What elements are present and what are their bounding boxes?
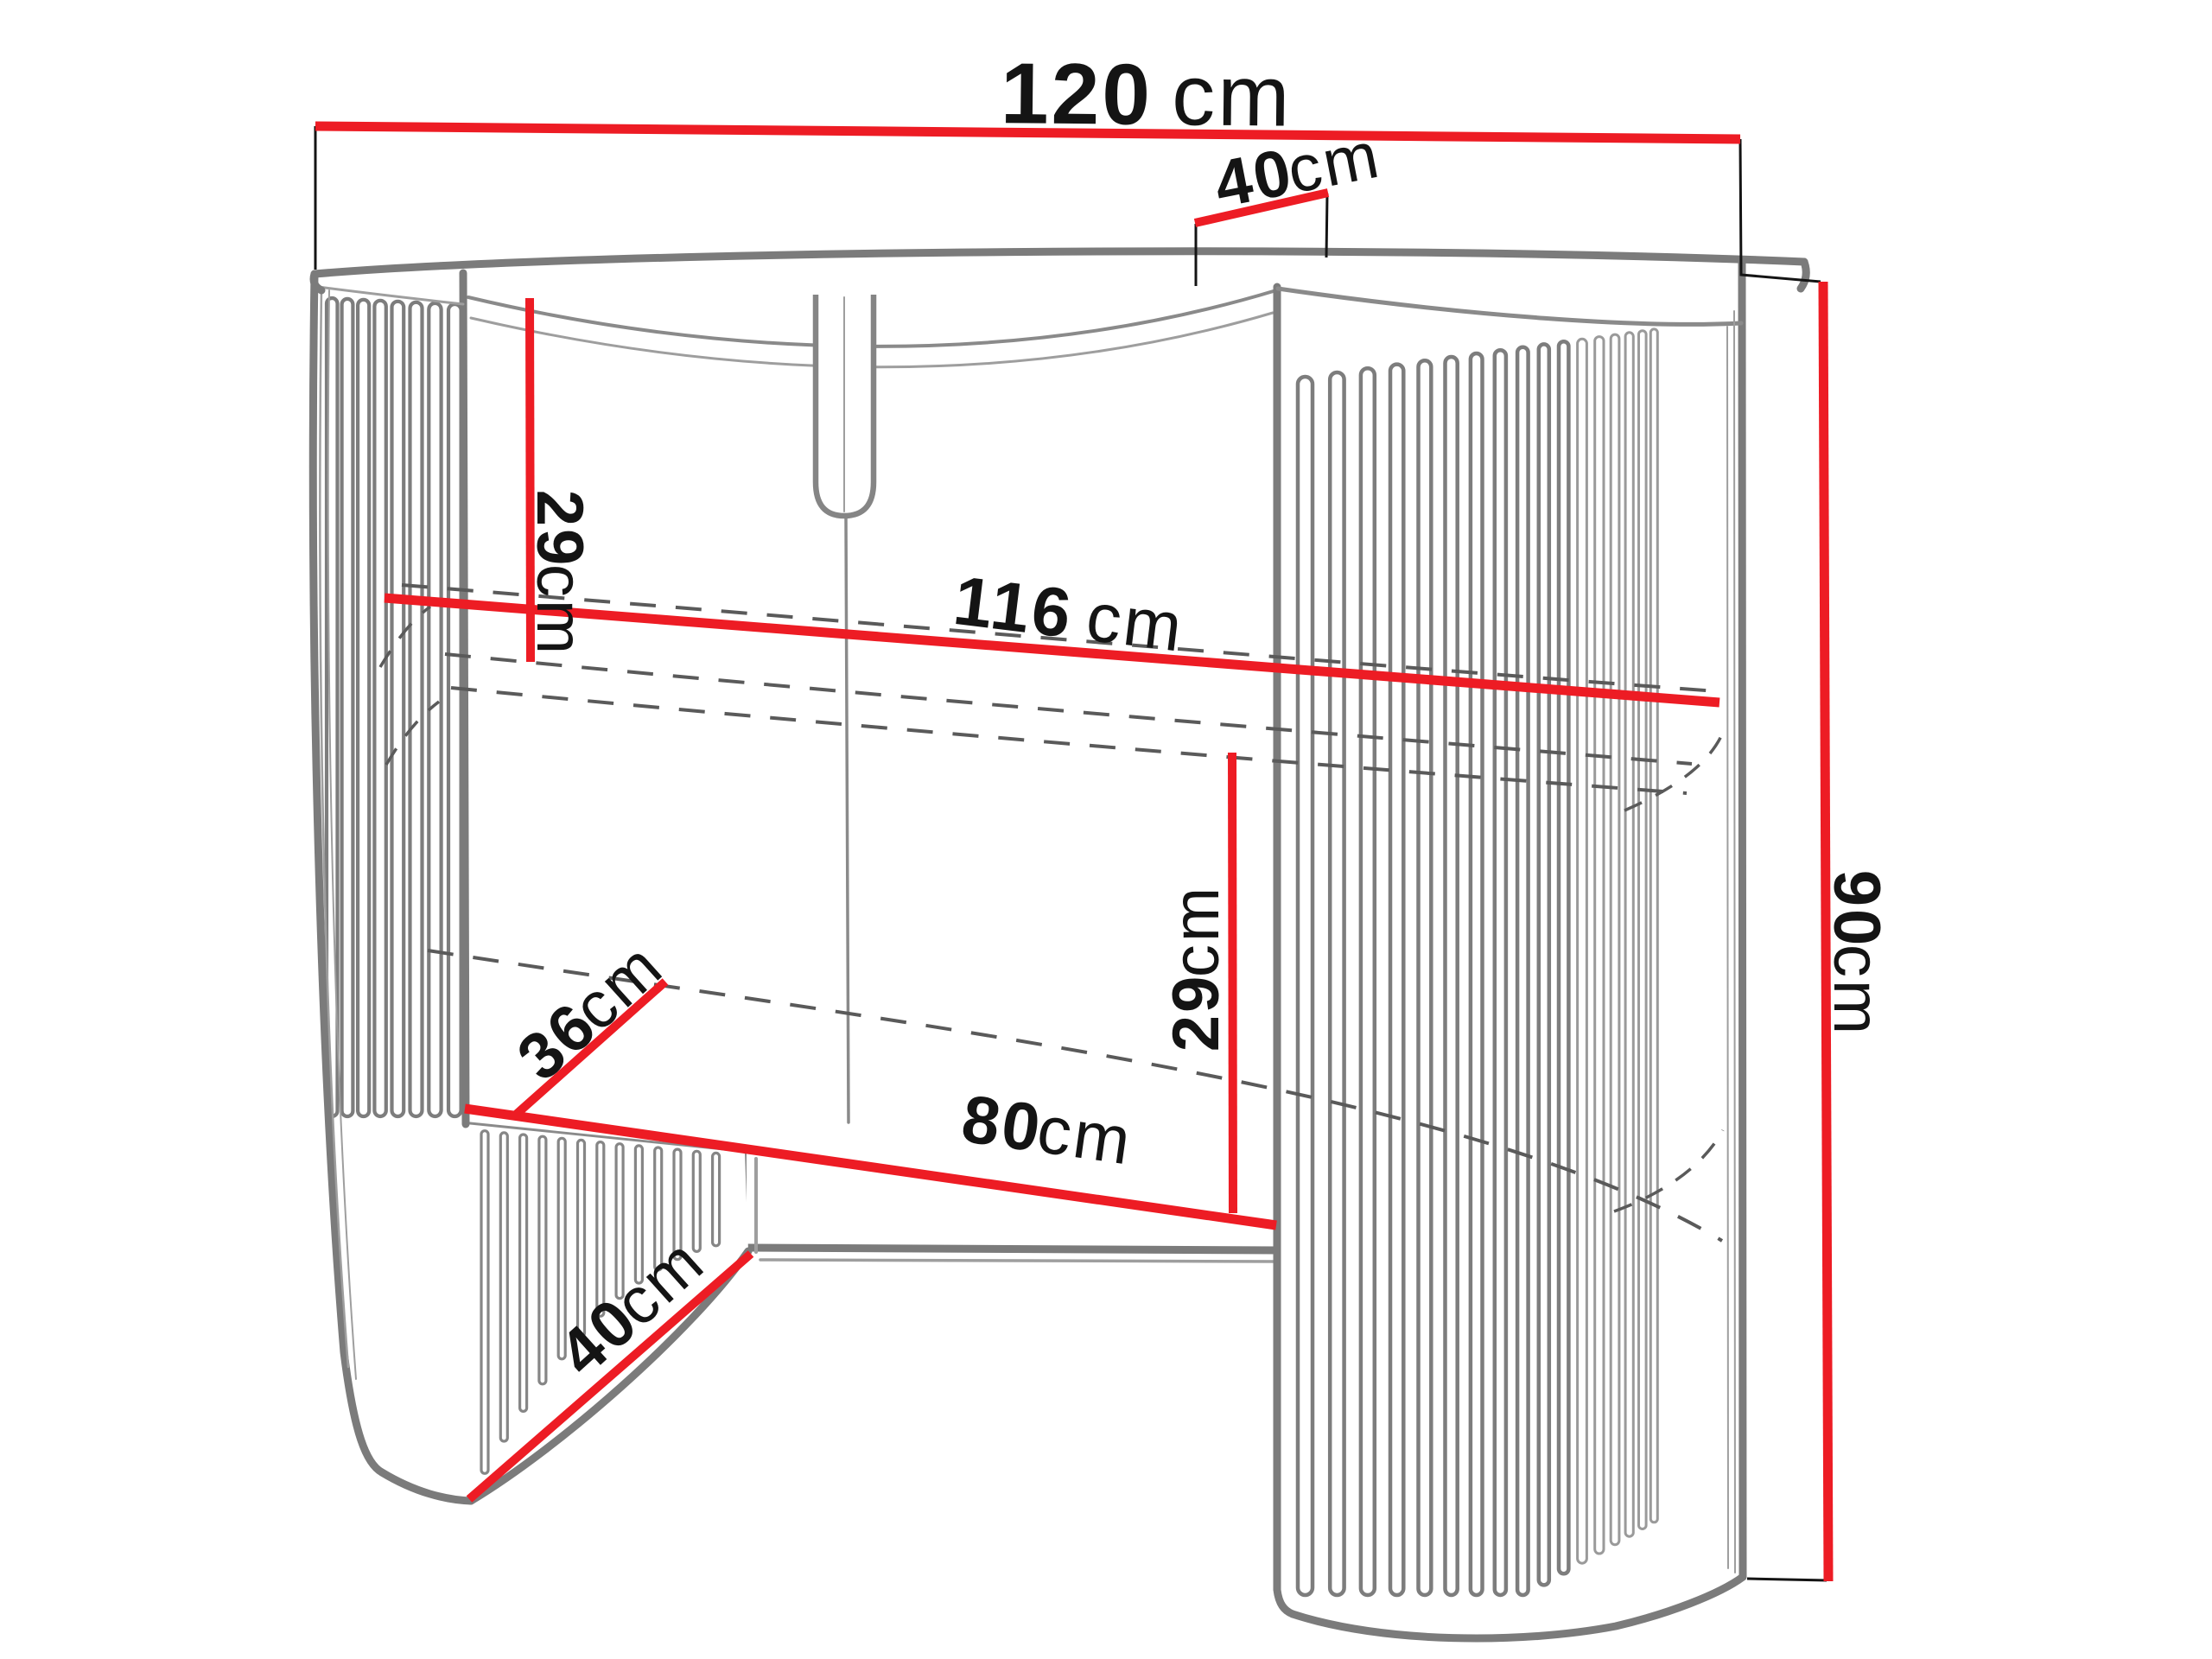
slat xyxy=(693,1151,700,1251)
slat xyxy=(481,1131,488,1474)
slat xyxy=(713,1153,720,1245)
right-column-side-line xyxy=(1727,327,1728,1568)
right-column xyxy=(1277,262,1743,1642)
slat xyxy=(342,299,353,1116)
slat xyxy=(539,1136,546,1384)
dim-label-clearance-upper: 29cm xyxy=(523,490,596,657)
extension-line xyxy=(1326,194,1327,257)
slat xyxy=(1611,334,1619,1545)
dim-label-width-top: 120cm xyxy=(1000,45,1293,145)
slat xyxy=(392,302,404,1116)
slat xyxy=(358,300,369,1116)
diagram-canvas: 120cm 40cm 29cm 116cm 36cm 29cm 80cm 40c… xyxy=(0,0,2212,1659)
dim-label-height: 90cm xyxy=(1820,870,1893,1037)
slat xyxy=(1559,341,1568,1573)
slat xyxy=(1495,350,1506,1595)
dim-label-clearance-lower: 29cm xyxy=(1160,885,1233,1052)
slat xyxy=(1361,368,1375,1595)
slat xyxy=(1639,331,1647,1529)
right-column-outline xyxy=(1742,262,1743,1577)
front-panel xyxy=(466,275,1280,1262)
right-column-side-line-2 xyxy=(1734,311,1735,1573)
slat xyxy=(1625,333,1633,1536)
slat xyxy=(1517,347,1529,1595)
slat xyxy=(1650,329,1657,1522)
top-slab-right-cap xyxy=(1801,262,1806,289)
front-bottom-edge xyxy=(747,1248,1280,1250)
slat xyxy=(1330,372,1344,1595)
slat xyxy=(1390,365,1403,1595)
slat xyxy=(448,304,461,1116)
slat xyxy=(1471,353,1483,1595)
extension-line xyxy=(1747,1579,1827,1580)
front-bottom-shadow xyxy=(760,1260,1280,1262)
left-column-front-edge xyxy=(463,273,466,1124)
furniture-dimension-diagram: 120cm 40cm 29cm 116cm 36cm 29cm 80cm 40c… xyxy=(0,0,2212,1659)
slat xyxy=(1539,344,1549,1585)
slat xyxy=(374,301,385,1116)
slat xyxy=(410,302,423,1116)
left-column-slats xyxy=(327,298,461,1116)
slat xyxy=(1595,337,1604,1554)
slat xyxy=(1578,339,1587,1563)
console-drawing xyxy=(313,251,1806,1642)
slat xyxy=(500,1133,507,1441)
slat xyxy=(1298,377,1313,1595)
slat xyxy=(1419,360,1432,1595)
slat xyxy=(1446,357,1458,1595)
slat xyxy=(520,1135,527,1411)
